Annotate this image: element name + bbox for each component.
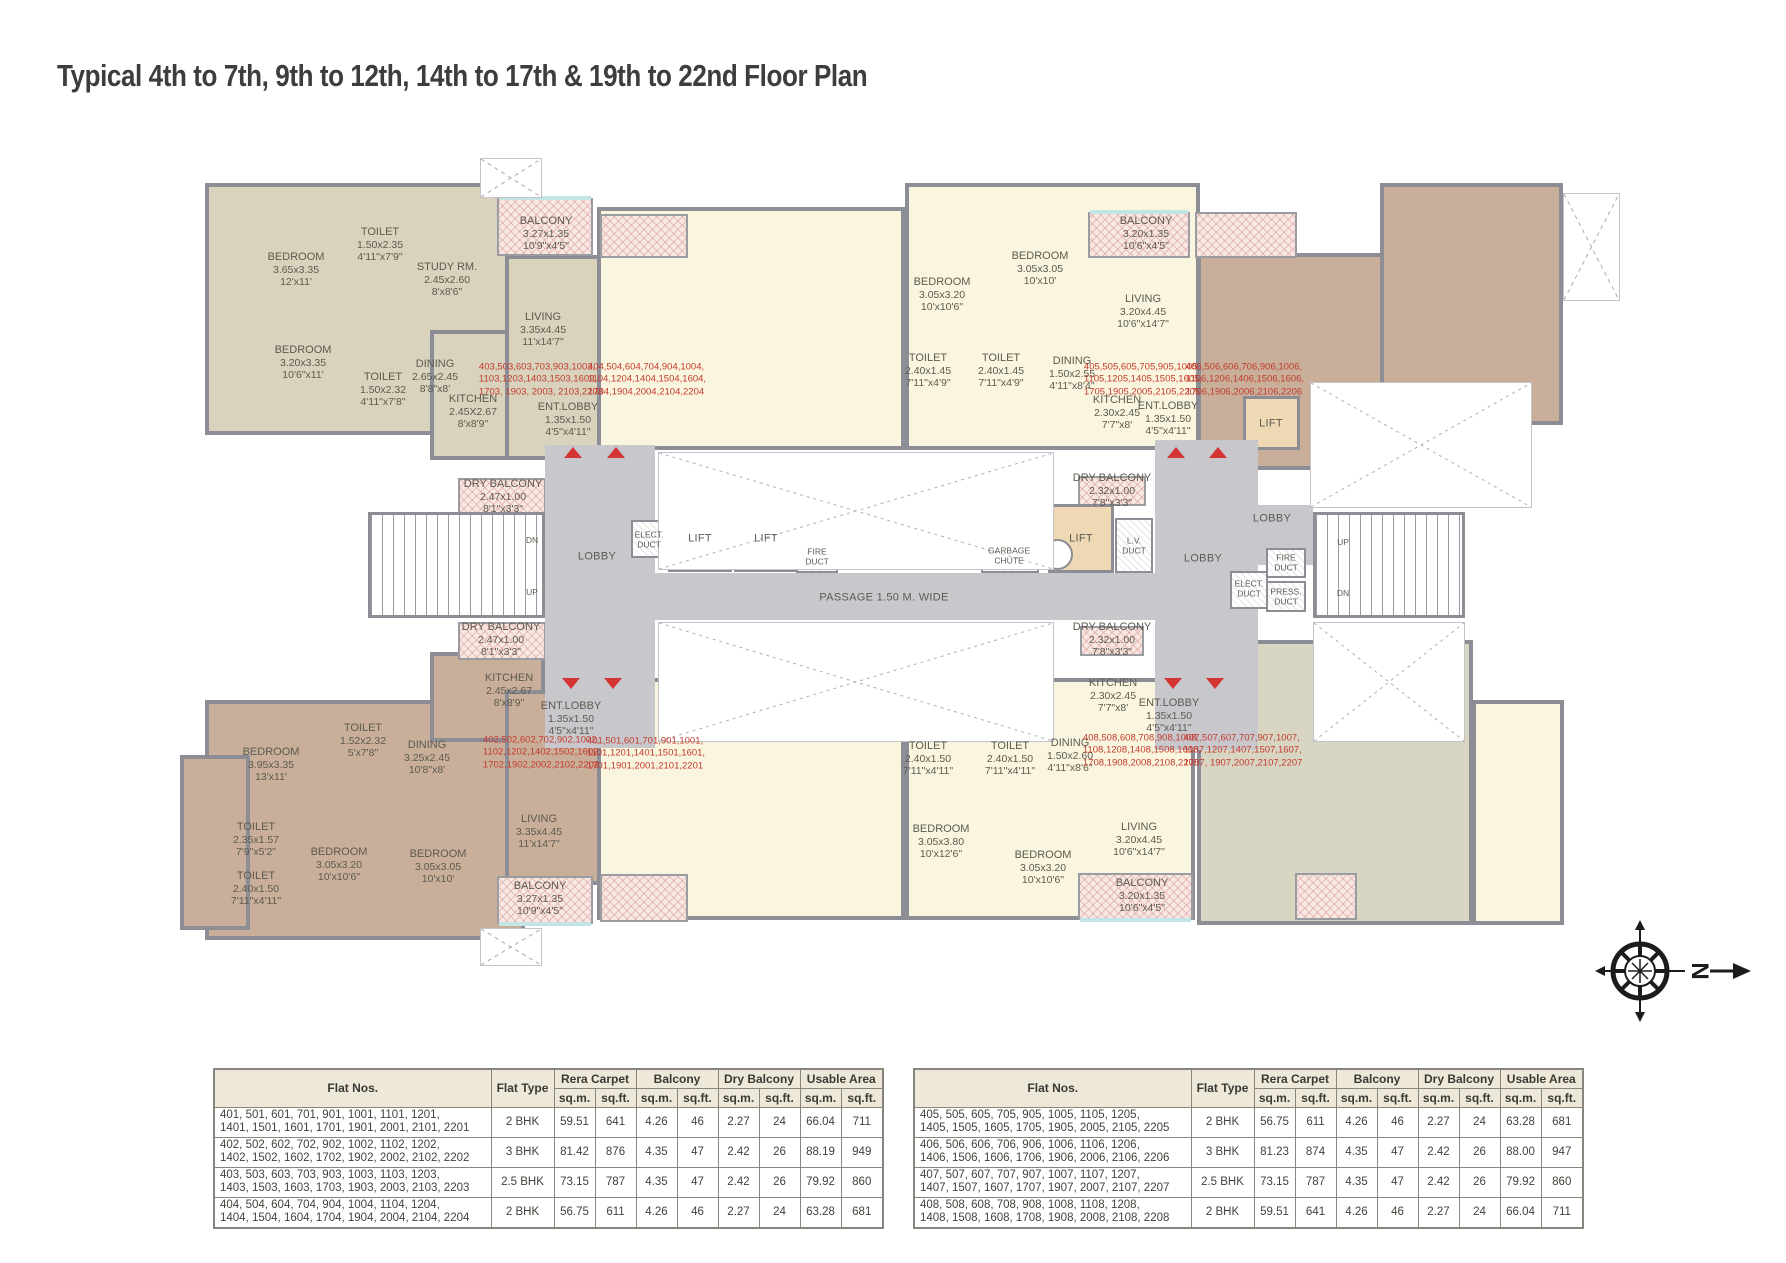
area-value-cell: 711 xyxy=(841,1107,883,1137)
room-label: DINING3.25x2.4510'8"x8' xyxy=(404,739,450,777)
col-header-unit: sq.m. xyxy=(1500,1088,1541,1107)
room-label: KITCHEN2.30x2.457'7"x8' xyxy=(1093,394,1141,432)
window-sill xyxy=(499,922,591,926)
area-value-cell: 2.27 xyxy=(1418,1197,1459,1228)
area-value-cell: 681 xyxy=(841,1197,883,1228)
room-label: LIVING3.35x4.4511'x14'7" xyxy=(516,813,562,851)
col-header-group: Rera Carpet xyxy=(554,1069,636,1088)
area-value-cell: 787 xyxy=(595,1167,636,1197)
balcony-407 xyxy=(1295,873,1357,920)
entry-marker xyxy=(1209,447,1227,458)
room-label: LIVING3.35x4.4511'x14'7" xyxy=(520,311,566,349)
area-value-cell: 59.51 xyxy=(1254,1197,1295,1228)
balcony-406 xyxy=(1195,212,1297,258)
core-label: UP xyxy=(526,588,538,598)
table-row: 402, 502, 602, 702, 902, 1002, 1102, 120… xyxy=(214,1137,883,1167)
area-value-cell: 711 xyxy=(1541,1197,1583,1228)
area-value-cell: 874 xyxy=(1295,1137,1336,1167)
col-header-unit: sq.ft. xyxy=(1377,1088,1418,1107)
flat-nos-cell: 408, 508, 608, 708, 908, 1008, 1108, 120… xyxy=(914,1197,1191,1228)
flat-nos-cell: 405, 505, 605, 705, 905, 1005, 1105, 120… xyxy=(914,1107,1191,1137)
core-label: GARBAGECHUTE xyxy=(988,546,1030,565)
col-header-unit: sq.m. xyxy=(1418,1088,1459,1107)
flat-type-cell: 2.5 BHK xyxy=(491,1167,554,1197)
unit-407-east-block xyxy=(1472,700,1564,925)
col-header-unit: sq.ft. xyxy=(595,1088,636,1107)
core-label: ELECT.DUCT xyxy=(635,530,664,549)
core-label: LOBBY xyxy=(1184,553,1222,566)
entry-marker xyxy=(1206,678,1224,689)
core-label: LIFT xyxy=(754,533,778,546)
core-label: LIFT xyxy=(1259,418,1283,431)
col-header-group: Balcony xyxy=(636,1069,718,1088)
col-header-unit: sq.m. xyxy=(718,1088,759,1107)
room-label: BEDROOM3.20x3.3510'6"x11' xyxy=(275,344,332,382)
room-label: TOILET2.35x1.577'9"x5'2" xyxy=(233,821,279,859)
area-value-cell: 4.35 xyxy=(1336,1167,1377,1197)
area-value-cell: 59.51 xyxy=(554,1107,595,1137)
area-value-cell: 2.27 xyxy=(718,1197,759,1228)
room-label: DRY BALCONY2.47x1.008'1"x3'3" xyxy=(464,478,542,516)
table-row: 406, 506, 606, 706, 906, 1006, 1106, 120… xyxy=(914,1137,1583,1167)
area-value-cell: 2.27 xyxy=(718,1107,759,1137)
area-value-cell: 681 xyxy=(1541,1107,1583,1137)
flat-nos-cell: 403, 503, 603, 703, 903, 1003, 1103, 120… xyxy=(214,1167,491,1197)
area-value-cell: 4.35 xyxy=(636,1137,677,1167)
room-label: KITCHEN2.30x2.457'7"x8' xyxy=(1089,677,1137,715)
core-label: L.V.DUCT xyxy=(1122,536,1146,555)
flat-nos-cell: 406, 506, 606, 706, 906, 1006, 1106, 120… xyxy=(914,1137,1191,1167)
window-sill xyxy=(1080,918,1191,922)
area-value-cell: 2.42 xyxy=(1418,1167,1459,1197)
entry-marker xyxy=(604,678,622,689)
area-value-cell: 88.00 xyxy=(1500,1137,1541,1167)
core-label: PASSAGE 1.50 M. WIDE xyxy=(819,592,948,605)
staircase-left xyxy=(368,512,545,618)
flat-numbers-label: 406,506,606,706,906,1006,1106,1206,1406,… xyxy=(1186,361,1304,398)
room-label: LIVING3.20x4.4510'6"x14'7" xyxy=(1113,821,1165,859)
area-value-cell: 46 xyxy=(1377,1107,1418,1137)
flat-numbers-label: 403,503,603,703,903,1003,1103,1203,1403,… xyxy=(479,361,603,398)
room-label: TOILET2.40x1.507'11"x4'11" xyxy=(903,740,953,778)
room-label: ENT.LOBBY1.35x1.504'5"x4'11" xyxy=(538,401,599,439)
area-value-cell: 63.28 xyxy=(800,1197,841,1228)
table-row: 408, 508, 608, 708, 908, 1008, 1108, 120… xyxy=(914,1197,1583,1228)
entry-marker xyxy=(1167,447,1185,458)
col-header-unit: sq.m. xyxy=(800,1088,841,1107)
room-label: BALCONY3.20x1.3510'6"x4'5" xyxy=(1116,877,1169,915)
col-header-group: Rera Carpet xyxy=(1254,1069,1336,1088)
col-header-flat-type: Flat Type xyxy=(491,1069,554,1107)
area-value-cell: 63.28 xyxy=(1500,1107,1541,1137)
room-label: TOILET1.50x2.324'11"x7'8" xyxy=(360,371,406,409)
area-value-cell: 949 xyxy=(841,1137,883,1167)
core-label: PRESS.DUCT xyxy=(1270,587,1301,606)
flat-type-cell: 2 BHK xyxy=(491,1197,554,1228)
room-label: STUDY RM.2.45x2.608'x8'6" xyxy=(417,261,477,299)
area-value-cell: 876 xyxy=(595,1137,636,1167)
col-header-flat-type: Flat Type xyxy=(1191,1069,1254,1107)
room-label: BALCONY3.27x1.3510'9"x4'5" xyxy=(520,215,573,253)
core-label: LIFT xyxy=(1069,533,1093,546)
area-value-cell: 24 xyxy=(759,1197,800,1228)
area-value-cell: 24 xyxy=(1459,1107,1500,1137)
balcony-404 xyxy=(600,214,688,258)
room-label: TOILET1.50x2.354'11"x7'9" xyxy=(357,226,403,264)
area-value-cell: 26 xyxy=(1459,1167,1500,1197)
area-value-cell: 4.35 xyxy=(1336,1137,1377,1167)
room-label: TOILET2.40x1.457'11"x4'9" xyxy=(905,352,951,390)
core-label: ELECT.DUCT xyxy=(1235,579,1264,598)
room-label: TOILET2.40x1.507'11"x4'11" xyxy=(231,870,281,908)
flat-type-cell: 2 BHK xyxy=(1191,1107,1254,1137)
area-value-cell: 73.15 xyxy=(1254,1167,1295,1197)
room-label: KITCHEN2.45X2.678'x8'9" xyxy=(449,393,497,431)
area-value-cell: 4.26 xyxy=(636,1197,677,1228)
col-header-group: Balcony xyxy=(1336,1069,1418,1088)
room-label: BEDROOM3.05x3.2010'x10'6" xyxy=(1015,849,1072,887)
room-label: BEDROOM3.65x3.3512'x11' xyxy=(268,251,325,289)
col-header-unit: sq.ft. xyxy=(677,1088,718,1107)
flat-area-table-left: Flat Nos.Flat TypeRera CarpetBalconyDry … xyxy=(213,1068,884,1229)
area-value-cell: 860 xyxy=(1541,1167,1583,1197)
col-header-group: Usable Area xyxy=(1500,1069,1583,1088)
flat-nos-cell: 401, 501, 601, 701, 901, 1001, 1101, 120… xyxy=(214,1107,491,1137)
area-value-cell: 4.26 xyxy=(636,1107,677,1137)
light-well-bottom-right xyxy=(1313,622,1465,742)
area-value-cell: 24 xyxy=(1459,1197,1500,1228)
area-value-cell: 641 xyxy=(595,1107,636,1137)
area-value-cell: 81.23 xyxy=(1254,1137,1295,1167)
room-label: BALCONY3.20x1.3510'6"x4'5" xyxy=(1120,215,1173,253)
page: Typical 4th to 7th, 9th to 12th, 14th to… xyxy=(0,0,1786,1263)
room-label: BEDROOM3.05x3.8010'x12'6" xyxy=(913,823,970,861)
room-label: BALCONY3.27x1.3510'9"x4'5" xyxy=(514,880,567,918)
area-value-cell: 860 xyxy=(841,1167,883,1197)
room-label: ENT.LOBBY1.35x1.504'5"x4'11" xyxy=(541,700,602,738)
area-value-cell: 46 xyxy=(677,1197,718,1228)
area-value-cell: 81.42 xyxy=(554,1137,595,1167)
room-label: DRY BALCONY2.32x1.007'8"x3'3" xyxy=(1073,621,1151,659)
flat-type-cell: 2 BHK xyxy=(1191,1197,1254,1228)
entry-marker xyxy=(1164,678,1182,689)
table-row: 405, 505, 605, 705, 905, 1005, 1105, 120… xyxy=(914,1107,1583,1137)
table-row: 404, 504, 604, 704, 904, 1004, 1104, 120… xyxy=(214,1197,883,1228)
flat-numbers-label: 405,505,605,705,905,1005,1105,1205,1405,… xyxy=(1084,361,1202,398)
area-value-cell: 79.92 xyxy=(800,1167,841,1197)
flat-area-table: Flat Nos.Flat TypeRera CarpetBalconyDry … xyxy=(213,1068,884,1229)
flat-type-cell: 2 BHK xyxy=(491,1107,554,1137)
area-value-cell: 947 xyxy=(1541,1137,1583,1167)
room-label: BEDROOM3.95x3.3513'x11' xyxy=(243,746,300,784)
flat-numbers-label: 402,502,602,702,902,1002,1102,1202,1402,… xyxy=(483,734,601,771)
room-label: BEDROOM3.05x3.2010'x10'6" xyxy=(311,846,368,884)
room-label: BEDROOM3.05x3.0510'x10' xyxy=(1012,250,1069,288)
flat-type-cell: 2.5 BHK xyxy=(1191,1167,1254,1197)
col-header-flat-nos: Flat Nos. xyxy=(214,1069,491,1107)
area-value-cell: 56.75 xyxy=(1254,1107,1295,1137)
area-value-cell: 4.26 xyxy=(1336,1197,1377,1228)
col-header-group: Dry Balcony xyxy=(1418,1069,1500,1088)
room-label: TOILET2.40x1.507'11"x4'11" xyxy=(985,740,1035,778)
room-label: BEDROOM3.05x3.2010'x10'6" xyxy=(914,276,971,314)
area-value-cell: 47 xyxy=(1377,1137,1418,1167)
staircase-right xyxy=(1313,512,1465,618)
compass-icon: N xyxy=(1595,916,1755,1028)
room-label: DRY BALCONY2.32x1.007'8"x3'3" xyxy=(1073,472,1151,510)
col-header-unit: sq.ft. xyxy=(1541,1088,1583,1107)
core-label: FIREDUCT xyxy=(805,547,829,566)
area-value-cell: 56.75 xyxy=(554,1197,595,1228)
col-header-unit: sq.m. xyxy=(554,1088,595,1107)
area-value-cell: 24 xyxy=(759,1107,800,1137)
col-header-unit: sq.ft. xyxy=(1459,1088,1500,1107)
core-label: DN xyxy=(1337,589,1349,599)
entry-marker xyxy=(564,447,582,458)
area-value-cell: 2.42 xyxy=(718,1167,759,1197)
area-value-cell: 2.27 xyxy=(1418,1107,1459,1137)
flat-numbers-label: 401,501,601,701,901,1001,1101,1201,1401,… xyxy=(587,735,705,772)
area-value-cell: 79.92 xyxy=(1500,1167,1541,1197)
area-value-cell: 787 xyxy=(1295,1167,1336,1197)
core-label: LOBBY xyxy=(578,551,616,564)
flat-type-cell: 3 BHK xyxy=(491,1137,554,1167)
balcony-401 xyxy=(600,874,688,922)
room-label: ENT.LOBBY1.35x1.504'5"x4'11" xyxy=(1139,697,1200,735)
room-label: TOILET2.40x1.457'11"x4'9" xyxy=(978,352,1024,390)
area-value-cell: 2.42 xyxy=(718,1137,759,1167)
area-value-cell: 66.04 xyxy=(1500,1197,1541,1228)
entry-marker xyxy=(607,447,625,458)
col-header-flat-nos: Flat Nos. xyxy=(914,1069,1191,1107)
light-well-bottom xyxy=(658,622,1054,742)
core-label: DN xyxy=(526,536,538,546)
table-row: 403, 503, 603, 703, 903, 1003, 1103, 120… xyxy=(214,1167,883,1197)
planter-box xyxy=(480,158,542,198)
window-sill xyxy=(1090,210,1188,214)
area-value-cell: 47 xyxy=(677,1167,718,1197)
area-value-cell: 4.26 xyxy=(1336,1107,1377,1137)
room-label: LIVING3.20x4.4510'6"x14'7" xyxy=(1117,293,1169,331)
area-value-cell: 611 xyxy=(1295,1107,1336,1137)
col-header-group: Usable Area xyxy=(800,1069,883,1088)
room-label: BEDROOM3.05x3.0510'x10' xyxy=(410,848,467,886)
table-row: 407, 507, 607, 707, 907, 1007, 1107, 120… xyxy=(914,1167,1583,1197)
area-value-cell: 611 xyxy=(595,1197,636,1228)
core-label: LOBBY xyxy=(1253,513,1291,526)
flat-numbers-label: 404,504,604,704,904,1004,1104,1204,1404,… xyxy=(588,361,706,398)
table-row: 401, 501, 601, 701, 901, 1001, 1101, 120… xyxy=(214,1107,883,1137)
light-well-top-right xyxy=(1310,382,1532,508)
core-label: LIFT xyxy=(688,533,712,546)
col-header-unit: sq.ft. xyxy=(759,1088,800,1107)
area-value-cell: 47 xyxy=(1377,1167,1418,1197)
area-value-cell: 46 xyxy=(1377,1197,1418,1228)
planter-box xyxy=(480,928,542,966)
area-value-cell: 88.19 xyxy=(800,1137,841,1167)
room-label: DRY BALCONY2.47x1.008'1"x3'3" xyxy=(462,621,540,659)
area-value-cell: 73.15 xyxy=(554,1167,595,1197)
area-value-cell: 26 xyxy=(759,1137,800,1167)
col-header-unit: sq.m. xyxy=(1254,1088,1295,1107)
flat-area-table: Flat Nos.Flat TypeRera CarpetBalconyDry … xyxy=(913,1068,1584,1229)
room-label: KITCHEN2.45x2.678'x8'9" xyxy=(485,672,533,710)
svg-text:N: N xyxy=(1686,962,1713,979)
room-label: TOILET1.52x2.325'x7'8" xyxy=(340,722,386,760)
core-label: UP xyxy=(1337,538,1349,548)
area-value-cell: 641 xyxy=(1295,1197,1336,1228)
core-label: FIREDUCT xyxy=(1274,553,1298,572)
flat-nos-cell: 407, 507, 607, 707, 907, 1007, 1107, 120… xyxy=(914,1167,1191,1197)
area-value-cell: 2.42 xyxy=(1418,1137,1459,1167)
col-header-group: Dry Balcony xyxy=(718,1069,800,1088)
entry-marker xyxy=(562,678,580,689)
area-value-cell: 66.04 xyxy=(800,1107,841,1137)
col-header-unit: sq.ft. xyxy=(841,1088,883,1107)
flat-nos-cell: 402, 502, 602, 702, 902, 1002, 1102, 120… xyxy=(214,1137,491,1167)
area-value-cell: 46 xyxy=(677,1107,718,1137)
flat-type-cell: 3 BHK xyxy=(1191,1137,1254,1167)
planter-box xyxy=(1563,193,1620,301)
col-header-unit: sq.m. xyxy=(1336,1088,1377,1107)
flat-numbers-label: 407,507,607,707,907,1007,1107,1207,1407,… xyxy=(1184,732,1303,769)
room-label: ENT.LOBBY1.35x1.504'5"x4'11" xyxy=(1138,400,1199,438)
flat-nos-cell: 404, 504, 604, 704, 904, 1004, 1104, 120… xyxy=(214,1197,491,1228)
col-header-unit: sq.ft. xyxy=(1295,1088,1336,1107)
area-value-cell: 26 xyxy=(759,1167,800,1197)
area-value-cell: 47 xyxy=(677,1137,718,1167)
flat-area-table-right: Flat Nos.Flat TypeRera CarpetBalconyDry … xyxy=(913,1068,1584,1229)
area-value-cell: 4.35 xyxy=(636,1167,677,1197)
area-value-cell: 26 xyxy=(1459,1137,1500,1167)
col-header-unit: sq.m. xyxy=(636,1088,677,1107)
room-label: DINING2.65x2.458'8"x8' xyxy=(412,358,458,396)
